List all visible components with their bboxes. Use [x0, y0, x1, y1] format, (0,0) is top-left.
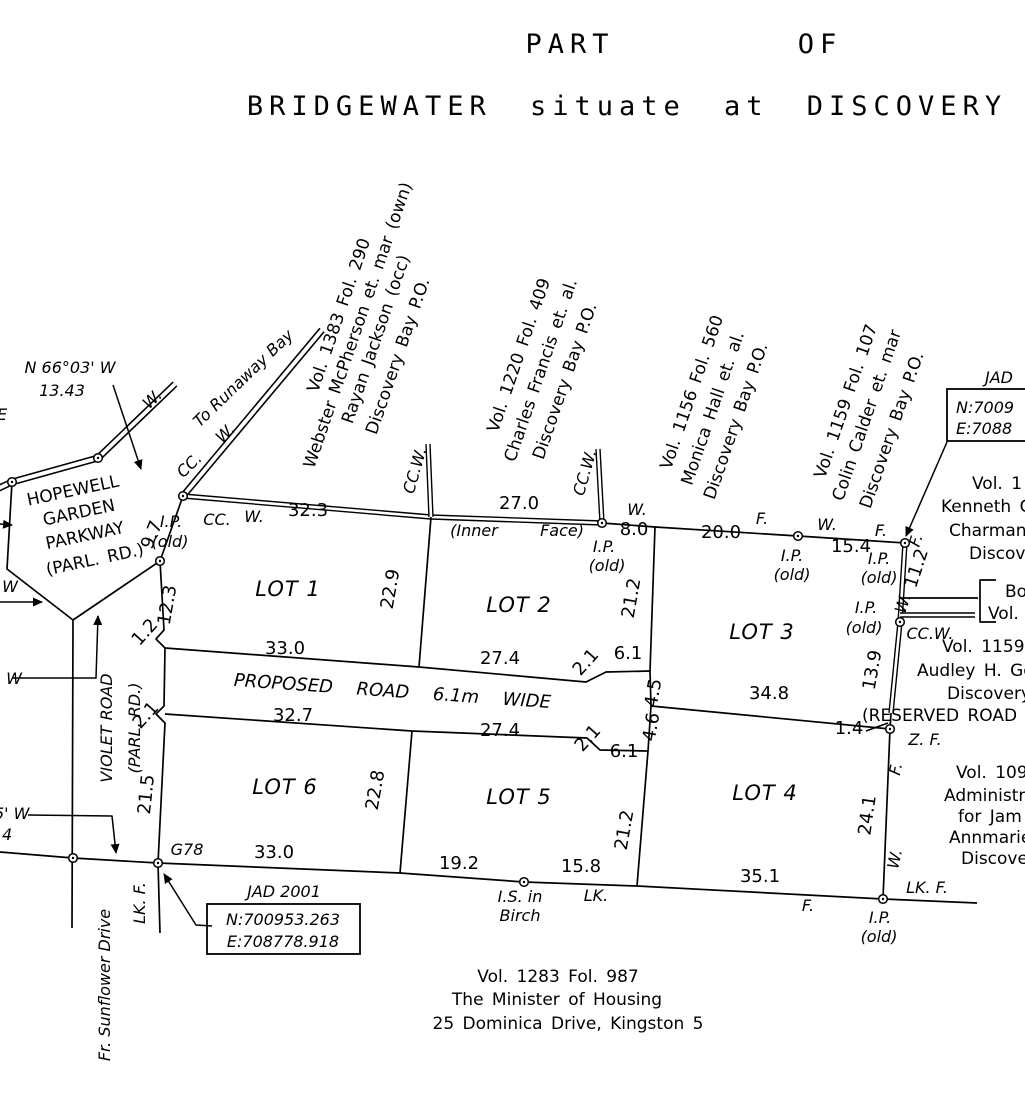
title-part: PART: [525, 29, 614, 60]
label-margin_notes-4: Bo: [1005, 582, 1025, 602]
lot6-lot5-divider: [400, 731, 412, 873]
label-measurements-32: 35.1: [740, 866, 780, 887]
label-measurements-8: 20.0: [701, 522, 741, 543]
label-measurements-1: 12.3: [154, 583, 182, 626]
label-margin_notes-14: Discovery: [961, 849, 1025, 869]
label-point_marks-13: (old): [774, 565, 811, 584]
label-point_marks-21: (old): [846, 618, 883, 637]
label-measurements-26: 21.2: [611, 808, 639, 851]
jad2001-caption: JAD 2001: [244, 882, 321, 901]
label-lot_names-4: LOT 5: [486, 785, 551, 809]
label-point_marks-7: CC.W.: [569, 447, 600, 497]
label-measurements-5: 32.3: [288, 500, 328, 521]
label-roads-8: VIOLET ROAD: [97, 673, 116, 782]
label-measurements-28: 22.8: [362, 768, 390, 811]
label-point_marks-14: W.: [817, 515, 837, 534]
label-roads-10: Fr. Sunflower Drive: [95, 909, 114, 1061]
label-point_marks-6: Face): [540, 521, 584, 540]
label-measurements-15: 27.4: [480, 648, 520, 669]
label-measurements-9: 15.4: [831, 536, 871, 557]
label-footer-1: The Minister of Housing: [451, 990, 662, 1010]
label-footer-2: 25 Dominica Drive, Kingston 5: [433, 1014, 704, 1034]
label-measurements-25: 1.4: [835, 718, 864, 739]
label-measurements-11: 22.9: [377, 567, 405, 610]
label-point_marks-34: LK. F.: [130, 882, 149, 924]
labels-layer: N 66°03' W13.43EWW5' W4W.To Runaway BayC…: [0, 180, 1025, 1061]
label-measurements-17: 6.1: [614, 643, 643, 664]
label-point_marks-26: LK. F.: [906, 878, 948, 897]
label-roads-0: W.: [139, 385, 166, 412]
label-point_marks-15: I.P.: [868, 549, 890, 568]
label-bearings-3: W: [2, 577, 19, 596]
survey-point-dot-9: [882, 898, 884, 900]
east-boundary-lower: [883, 713, 891, 899]
label-point_marks-10: W.: [627, 500, 647, 519]
label-point_marks-2: CC.: [203, 510, 230, 529]
label-point_marks-25: W.: [883, 847, 906, 870]
label-measurements-27: 24.1: [854, 794, 880, 837]
survey-point-dot-10: [523, 881, 525, 883]
label-margin_notes-13: Annmarie: [949, 828, 1025, 848]
lot1-lot2-divider: [419, 517, 431, 667]
label-margin_notes-8: Discovery: [947, 684, 1025, 704]
label-point_marks-4: CC.W.: [399, 445, 430, 495]
label-point_marks-24: F.: [885, 761, 906, 777]
label-measurements-6: 27.0: [499, 493, 539, 514]
survey-point-dot-2: [182, 495, 184, 497]
title-of: OF: [798, 29, 843, 60]
jad-right-caption: JAD: [982, 368, 1013, 387]
label-lot_names-5: LOT 6: [252, 775, 317, 799]
label-measurements-19: 27.4: [480, 720, 520, 741]
label-margin_notes-2: Charmane: [949, 521, 1025, 541]
survey-point-dot-0: [11, 481, 13, 483]
coordinate-box-jad2001: JAD 2001 N:700953.263 E:708778.918: [207, 882, 360, 954]
survey-point-dot-8: [889, 728, 891, 730]
label-margin_notes-10: Vol. 109: [956, 763, 1025, 783]
label-margin_notes-0: Vol. 1: [972, 474, 1022, 494]
label-point_marks-12: I.P.: [781, 546, 803, 565]
survey-point-dot-12: [72, 857, 74, 859]
leader-left-small: [0, 524, 12, 525]
label-point_marks-33: G78: [171, 840, 204, 859]
label-margin_notes-1: Kenneth Ca: [941, 497, 1025, 517]
label-point_marks-11: F.: [756, 509, 768, 528]
label-lot_names-3: LOT 4: [732, 781, 797, 805]
label-point_marks-20: I.P.: [855, 598, 877, 617]
survey-point-dot-5: [797, 535, 799, 537]
label-measurements-7: 8.0: [620, 519, 649, 540]
label-measurements-23: 4.6: [639, 711, 665, 743]
jad-right-easting: E:7088: [956, 419, 1012, 438]
label-lot_names-0: LOT 1: [255, 577, 320, 601]
label-point_marks-29: LK.: [584, 886, 609, 905]
label-point_marks-30: I.S. in: [498, 887, 543, 906]
survey-point-dot-7: [899, 621, 901, 623]
label-margin_notes-9: (RESERVED ROAD: [862, 706, 1017, 726]
survey-plan-drawing: JAD 2001 N:700953.263 E:708778.918 JAD N…: [0, 0, 1025, 1099]
title-subtitle: BRIDGEWATER situate at DISCOVERY: [247, 91, 1007, 122]
violet-road-west-edge: [72, 620, 73, 928]
leader-jad-right-box: [906, 442, 947, 536]
label-margin_notes-3: Discove: [969, 544, 1025, 564]
label-measurements-18: 32.7: [273, 705, 313, 726]
label-bearings-6: 4: [2, 825, 12, 844]
label-point_marks-28: (old): [861, 927, 898, 946]
survey-point-dot-1: [97, 457, 99, 459]
label-footer-0: Vol. 1283 Fol. 987: [477, 967, 638, 987]
leader-w-lower: [13, 616, 98, 678]
label-point_marks-8: I.P.: [593, 537, 615, 556]
label-bearings-0: N 66°03' W: [24, 358, 116, 377]
label-measurements-14: 33.0: [265, 638, 305, 659]
jad2001-easting: E:708778.918: [227, 932, 339, 951]
label-margin_notes-7: Audley H. Gor: [917, 661, 1025, 681]
label-margin_notes-11: Administrat: [944, 786, 1025, 806]
title-block: PART OF BRIDGEWATER situate at DISCOVERY: [247, 29, 1007, 122]
label-point_marks-5: (Inner: [450, 521, 499, 540]
label-point_marks-1: (old): [152, 532, 189, 551]
label-bearings-2: E: [0, 405, 8, 424]
label-margin_notes-12: for Jam: [958, 807, 1022, 827]
label-point_marks-27: I.P.: [869, 908, 891, 927]
label-measurements-31: 15.8: [561, 856, 601, 877]
label-bearings-5: 5' W: [0, 804, 31, 823]
label-measurements-24: 34.8: [749, 683, 789, 704]
label-bearings-1: 13.43: [39, 381, 85, 400]
label-point_marks-31: Birch: [500, 906, 541, 925]
leader-bearing-6603: [113, 385, 141, 469]
label-measurements-16: 2.1: [569, 645, 604, 680]
jad-right-northing: N:7009: [956, 398, 1014, 417]
label-margin_notes-5: Vol.: [988, 604, 1019, 624]
label-point_marks-0: I.P.: [160, 512, 182, 531]
label-lot_names-2: LOT 3: [729, 620, 794, 644]
label-measurements-22: 4.5: [641, 677, 667, 709]
label-point_marks-19: W.: [891, 591, 915, 616]
label-point_marks-23: Z. F.: [907, 730, 941, 749]
label-point_marks-9: (old): [589, 556, 626, 575]
label-measurements-12: 21.2: [618, 576, 646, 619]
label-lot_names-1: LOT 2: [486, 593, 551, 617]
coordinate-box-jad-right: JAD N:7009 E:7088: [947, 368, 1025, 441]
leader-jad2001-box: [164, 874, 212, 926]
label-measurements-4: 21.5: [134, 773, 159, 815]
label-point_marks-32: F.: [802, 896, 814, 915]
label-measurements-21: 6.1: [610, 741, 639, 762]
label-roads-3: W.: [212, 419, 239, 446]
jad2001-northing: N:700953.263: [226, 910, 340, 929]
label-point_marks-3: W.: [244, 507, 264, 526]
label-measurements-29: 33.0: [254, 842, 294, 863]
label-margin_notes-6: Vol. 1159: [942, 637, 1025, 657]
leaders-layer: [0, 385, 947, 926]
label-measurements-30: 19.2: [439, 853, 479, 874]
label-point_marks-16: (old): [861, 568, 898, 587]
survey-point-dot-11: [157, 862, 159, 864]
label-bearings-4: W: [6, 669, 23, 688]
survey-point-dot-4: [601, 522, 603, 524]
label-measurements-13: 13.9: [859, 648, 887, 691]
label-point_marks-17: F.: [875, 521, 887, 540]
survey-point-dot-3: [159, 560, 161, 562]
